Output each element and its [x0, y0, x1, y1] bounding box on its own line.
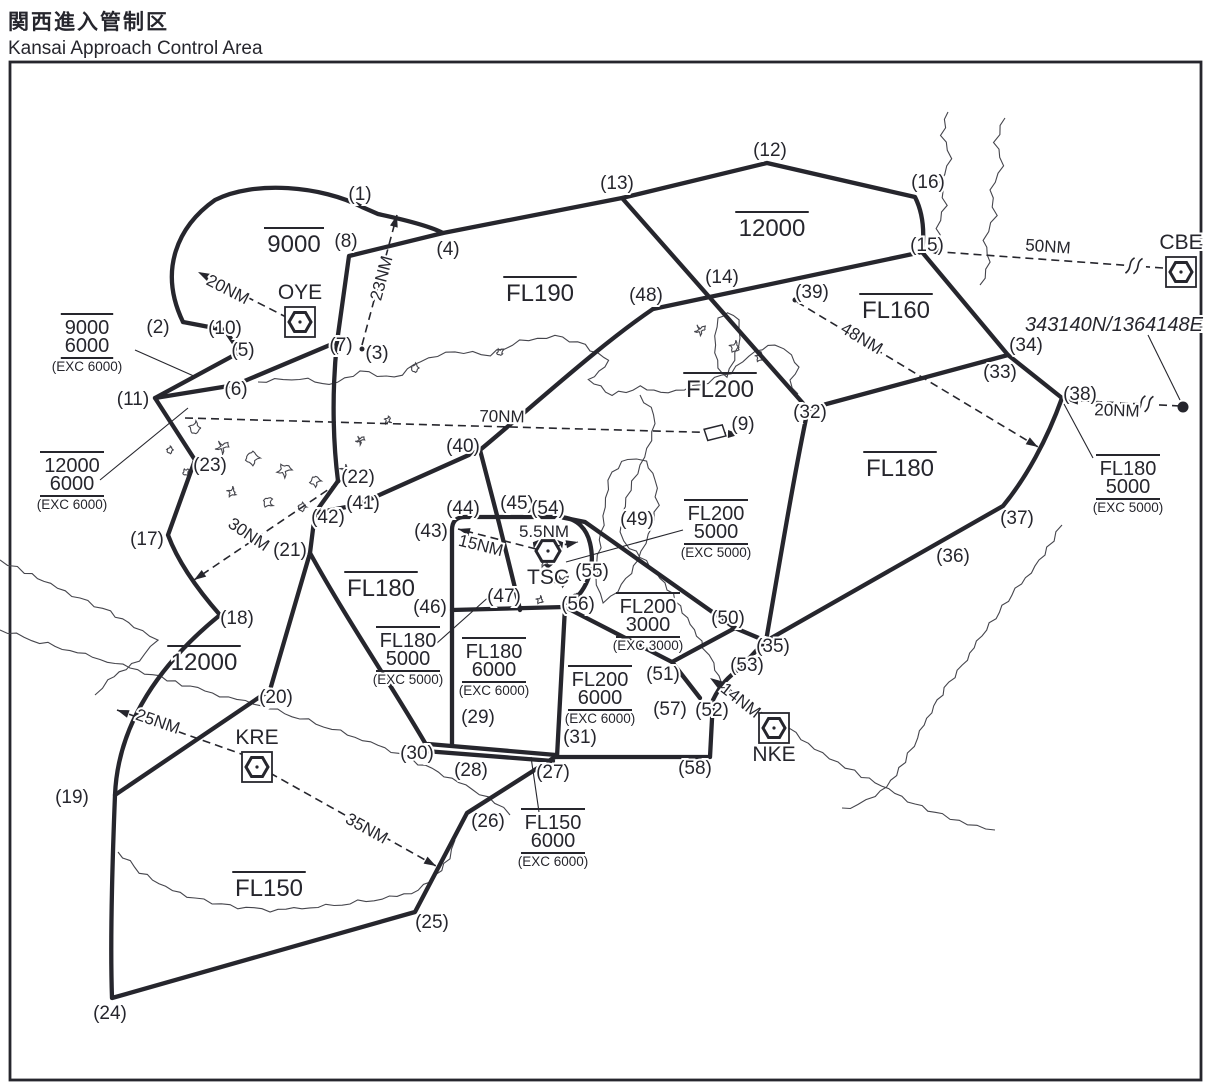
island: [167, 446, 174, 454]
leader-line: [1148, 335, 1180, 400]
arrowhead-icon: [566, 540, 579, 548]
island: [246, 451, 261, 466]
reference-dot: [1178, 402, 1189, 413]
boundary-point-label: (32): [793, 402, 827, 423]
altitude-limit-label: FL190: [506, 280, 574, 307]
island: [264, 498, 274, 507]
boundary-point-label: (36): [936, 546, 970, 567]
coastline-lake: [715, 313, 740, 377]
reference-dot: [360, 347, 365, 352]
range-lower: 5000: [1106, 476, 1151, 498]
boundary-line: [766, 409, 808, 641]
distance-label: 5.5NM: [519, 522, 569, 541]
boundary-point-label: (57): [653, 699, 687, 720]
leader-line: [1064, 404, 1093, 458]
boundary-point-label: (17): [130, 529, 164, 550]
boundary-point-label: (56): [561, 594, 595, 615]
distance-label: 70NM: [479, 407, 525, 427]
boundary-point-label: (51): [646, 664, 680, 685]
leader-line: [100, 408, 188, 480]
distance-label: 20NM: [1094, 400, 1140, 421]
distance-line: [185, 418, 728, 433]
navaid-label: KRE: [235, 726, 278, 749]
range-lower: 5000: [386, 648, 431, 670]
boundary-point-label: (1): [348, 184, 371, 205]
island: [189, 421, 201, 434]
boundary-point-label: (23): [193, 455, 227, 476]
island: [310, 476, 322, 487]
range-lower: 6000: [65, 335, 110, 357]
island: [497, 349, 504, 356]
boundary-point-label: (49): [620, 509, 654, 530]
altitude-range-label: FL1806000(EXC 6000): [459, 638, 530, 698]
reference-dot: [336, 479, 341, 484]
leader-line: [566, 530, 683, 562]
boundary-point-label: (30): [400, 743, 434, 764]
range-exception: (EXC 5000): [1093, 500, 1164, 515]
altitude-limit-label: 12000: [739, 215, 806, 242]
altitude-limit-label: FL200: [686, 376, 754, 403]
altitude-range-label: 90006000(EXC 6000): [52, 314, 123, 374]
altitude-limit-label: 12000: [171, 649, 238, 676]
boundary-point-label: (52): [695, 700, 729, 721]
boundary-point-label: (47): [487, 586, 521, 607]
navaid-nke: NKE: [752, 713, 795, 766]
boundary-point-label: (27): [536, 762, 570, 783]
distance-label: 23NM: [366, 254, 396, 303]
altitude-range-label: FL2005000(EXC 5000): [681, 500, 752, 560]
distance-label: 15NM: [457, 531, 506, 560]
vor-center-dot: [772, 726, 775, 729]
boundary-point-label: (22): [341, 467, 375, 488]
boundary-point-label: (55): [575, 561, 609, 582]
altitude-limit-label: 9000: [267, 231, 320, 258]
boundary-point-label: (46): [413, 597, 447, 618]
boundary-point-label: (8): [334, 231, 357, 252]
boundary-point-label: (16): [911, 172, 945, 193]
boundary-point-label: (3): [365, 343, 388, 364]
island: [277, 464, 292, 478]
boundary-point-label: (10): [208, 318, 242, 339]
navaid-label: CBE: [1159, 231, 1202, 254]
boundary-point-label: (11): [117, 389, 149, 410]
range-exception: (EXC 6000): [518, 854, 589, 869]
navaid-label: NKE: [752, 743, 795, 766]
coastline: [980, 118, 1005, 285]
coordinate-note: 343140N/1364148E: [1025, 314, 1204, 336]
altitude-range-label: FL1805000(EXC 5000): [1093, 455, 1164, 515]
boundary-point-label: (35): [756, 636, 790, 657]
line-break-icon: [1125, 255, 1146, 276]
range-exception: (EXC 5000): [373, 672, 444, 687]
boundary-point-label: (33): [983, 362, 1017, 383]
boundary-point-label: (50): [711, 608, 745, 629]
island: [355, 436, 364, 445]
boundary-point-label: (43): [414, 521, 448, 542]
boundary-point-label: (14): [705, 267, 739, 288]
boundary-point-label: (2): [146, 317, 169, 338]
range-exception: (EXC 3000): [613, 638, 684, 653]
range-exception: (EXC 6000): [52, 359, 123, 374]
boundary-point-label: (15): [910, 235, 944, 256]
boundary-point-label: (4): [436, 239, 459, 260]
altitude-range-label: FL1805000(EXC 5000): [373, 627, 444, 687]
boundary-point-label: (24): [93, 1003, 127, 1024]
distance-label: 30NM: [225, 514, 273, 555]
altitude-range-label: FL2003000(EXC 3000): [613, 593, 684, 653]
range-lower: 5000: [694, 521, 739, 543]
leader-line: [135, 350, 196, 377]
arrowhead-icon: [1026, 437, 1038, 447]
distance-label: 48NM: [837, 319, 886, 359]
island: [215, 441, 229, 454]
boundary-point-label: (12): [753, 140, 787, 161]
boundary-point-label: (7): [329, 335, 352, 356]
approach-control-area-chart: 20NM23NM50NM70NM48NM30NM25NM35NM14NM15NM…: [0, 0, 1209, 1088]
island: [411, 363, 420, 372]
altitude-limit-label: FL160: [862, 297, 930, 324]
range-lower: 6000: [531, 830, 576, 852]
boundary-point-label: (37): [1000, 508, 1034, 529]
distance-label: 25NM: [133, 705, 182, 738]
range-lower: 6000: [472, 659, 517, 681]
range-exception: (EXC 5000): [681, 545, 752, 560]
boundary-point-label: (41): [346, 493, 380, 514]
range-exception: (EXC 6000): [565, 711, 636, 726]
boundary-point-label: (20): [259, 687, 293, 708]
boundary-point-label: (44): [446, 498, 480, 519]
altitude-limit-label: FL150: [235, 875, 303, 902]
navaid-cbe: CBE: [1159, 231, 1202, 287]
altitude-range-label: FL1506000(EXC 6000): [518, 809, 589, 869]
boundary-point-label: (19): [55, 787, 89, 808]
vor-center-dot: [255, 765, 258, 768]
vor-center-dot: [1179, 270, 1182, 273]
boundary-point-label: (54): [531, 498, 565, 519]
boundary-point-label: (39): [795, 282, 829, 303]
boundary-point-label: (42): [311, 507, 345, 528]
distance-label: 35NM: [342, 809, 391, 848]
coastline: [0, 560, 158, 695]
boundary-point-label: (9): [731, 414, 754, 435]
coastline: [842, 525, 1062, 809]
boundary-point-label: (18): [220, 608, 254, 629]
island: [729, 340, 739, 352]
arrowhead-icon: [194, 570, 206, 580]
boundary-point-label: (13): [600, 173, 634, 194]
arrowhead-icon: [117, 710, 130, 718]
altitude-limit-label: FL180: [866, 455, 934, 482]
navaid-label: TSC: [527, 566, 569, 589]
island: [694, 325, 705, 336]
vor-center-dot: [546, 549, 549, 552]
boundary-point-label: (25): [415, 912, 449, 933]
altitude-range-label: 120006000(EXC 6000): [37, 452, 108, 512]
boundary-point-label: (29): [461, 707, 495, 728]
boundary-point-label: (58): [678, 758, 712, 779]
navaid-oye: OYE: [278, 281, 322, 337]
boundary-point-label: (53): [730, 655, 764, 676]
arrowhead-icon: [424, 857, 436, 866]
range-exception: (EXC 6000): [459, 683, 530, 698]
boundary-point-label: (28): [454, 760, 488, 781]
range-lower: 6000: [578, 687, 623, 709]
boundary-point-label: (34): [1009, 335, 1043, 356]
navaid-kre: KRE: [235, 726, 278, 782]
boundary-point-label: (40): [446, 436, 480, 457]
boundary-point-label: (5): [231, 340, 254, 361]
boundary-point-label: (45): [500, 493, 534, 514]
altitude-limit-label: FL180: [347, 575, 415, 602]
boundary-point-label: (38): [1063, 384, 1097, 405]
boundary-point-label: (48): [629, 285, 663, 306]
boundary-point-label: (26): [471, 811, 505, 832]
navaid-label: OYE: [278, 281, 322, 304]
boundary-point-label: (6): [224, 379, 247, 400]
distance-label: 50NM: [1025, 235, 1072, 257]
boundary-point-label: (21): [273, 540, 307, 561]
boundary-point-label: (31): [563, 727, 597, 748]
island: [226, 486, 236, 497]
altitude-range-label: FL2006000(EXC 6000): [565, 666, 636, 726]
island: [536, 595, 544, 603]
distance-label: 20NM: [203, 271, 252, 309]
range-lower: 3000: [626, 614, 671, 636]
vor-center-dot: [298, 320, 301, 323]
range-exception: (EXC 6000): [37, 497, 108, 512]
range-lower: 6000: [50, 473, 95, 495]
boundary-line: [808, 355, 1008, 409]
